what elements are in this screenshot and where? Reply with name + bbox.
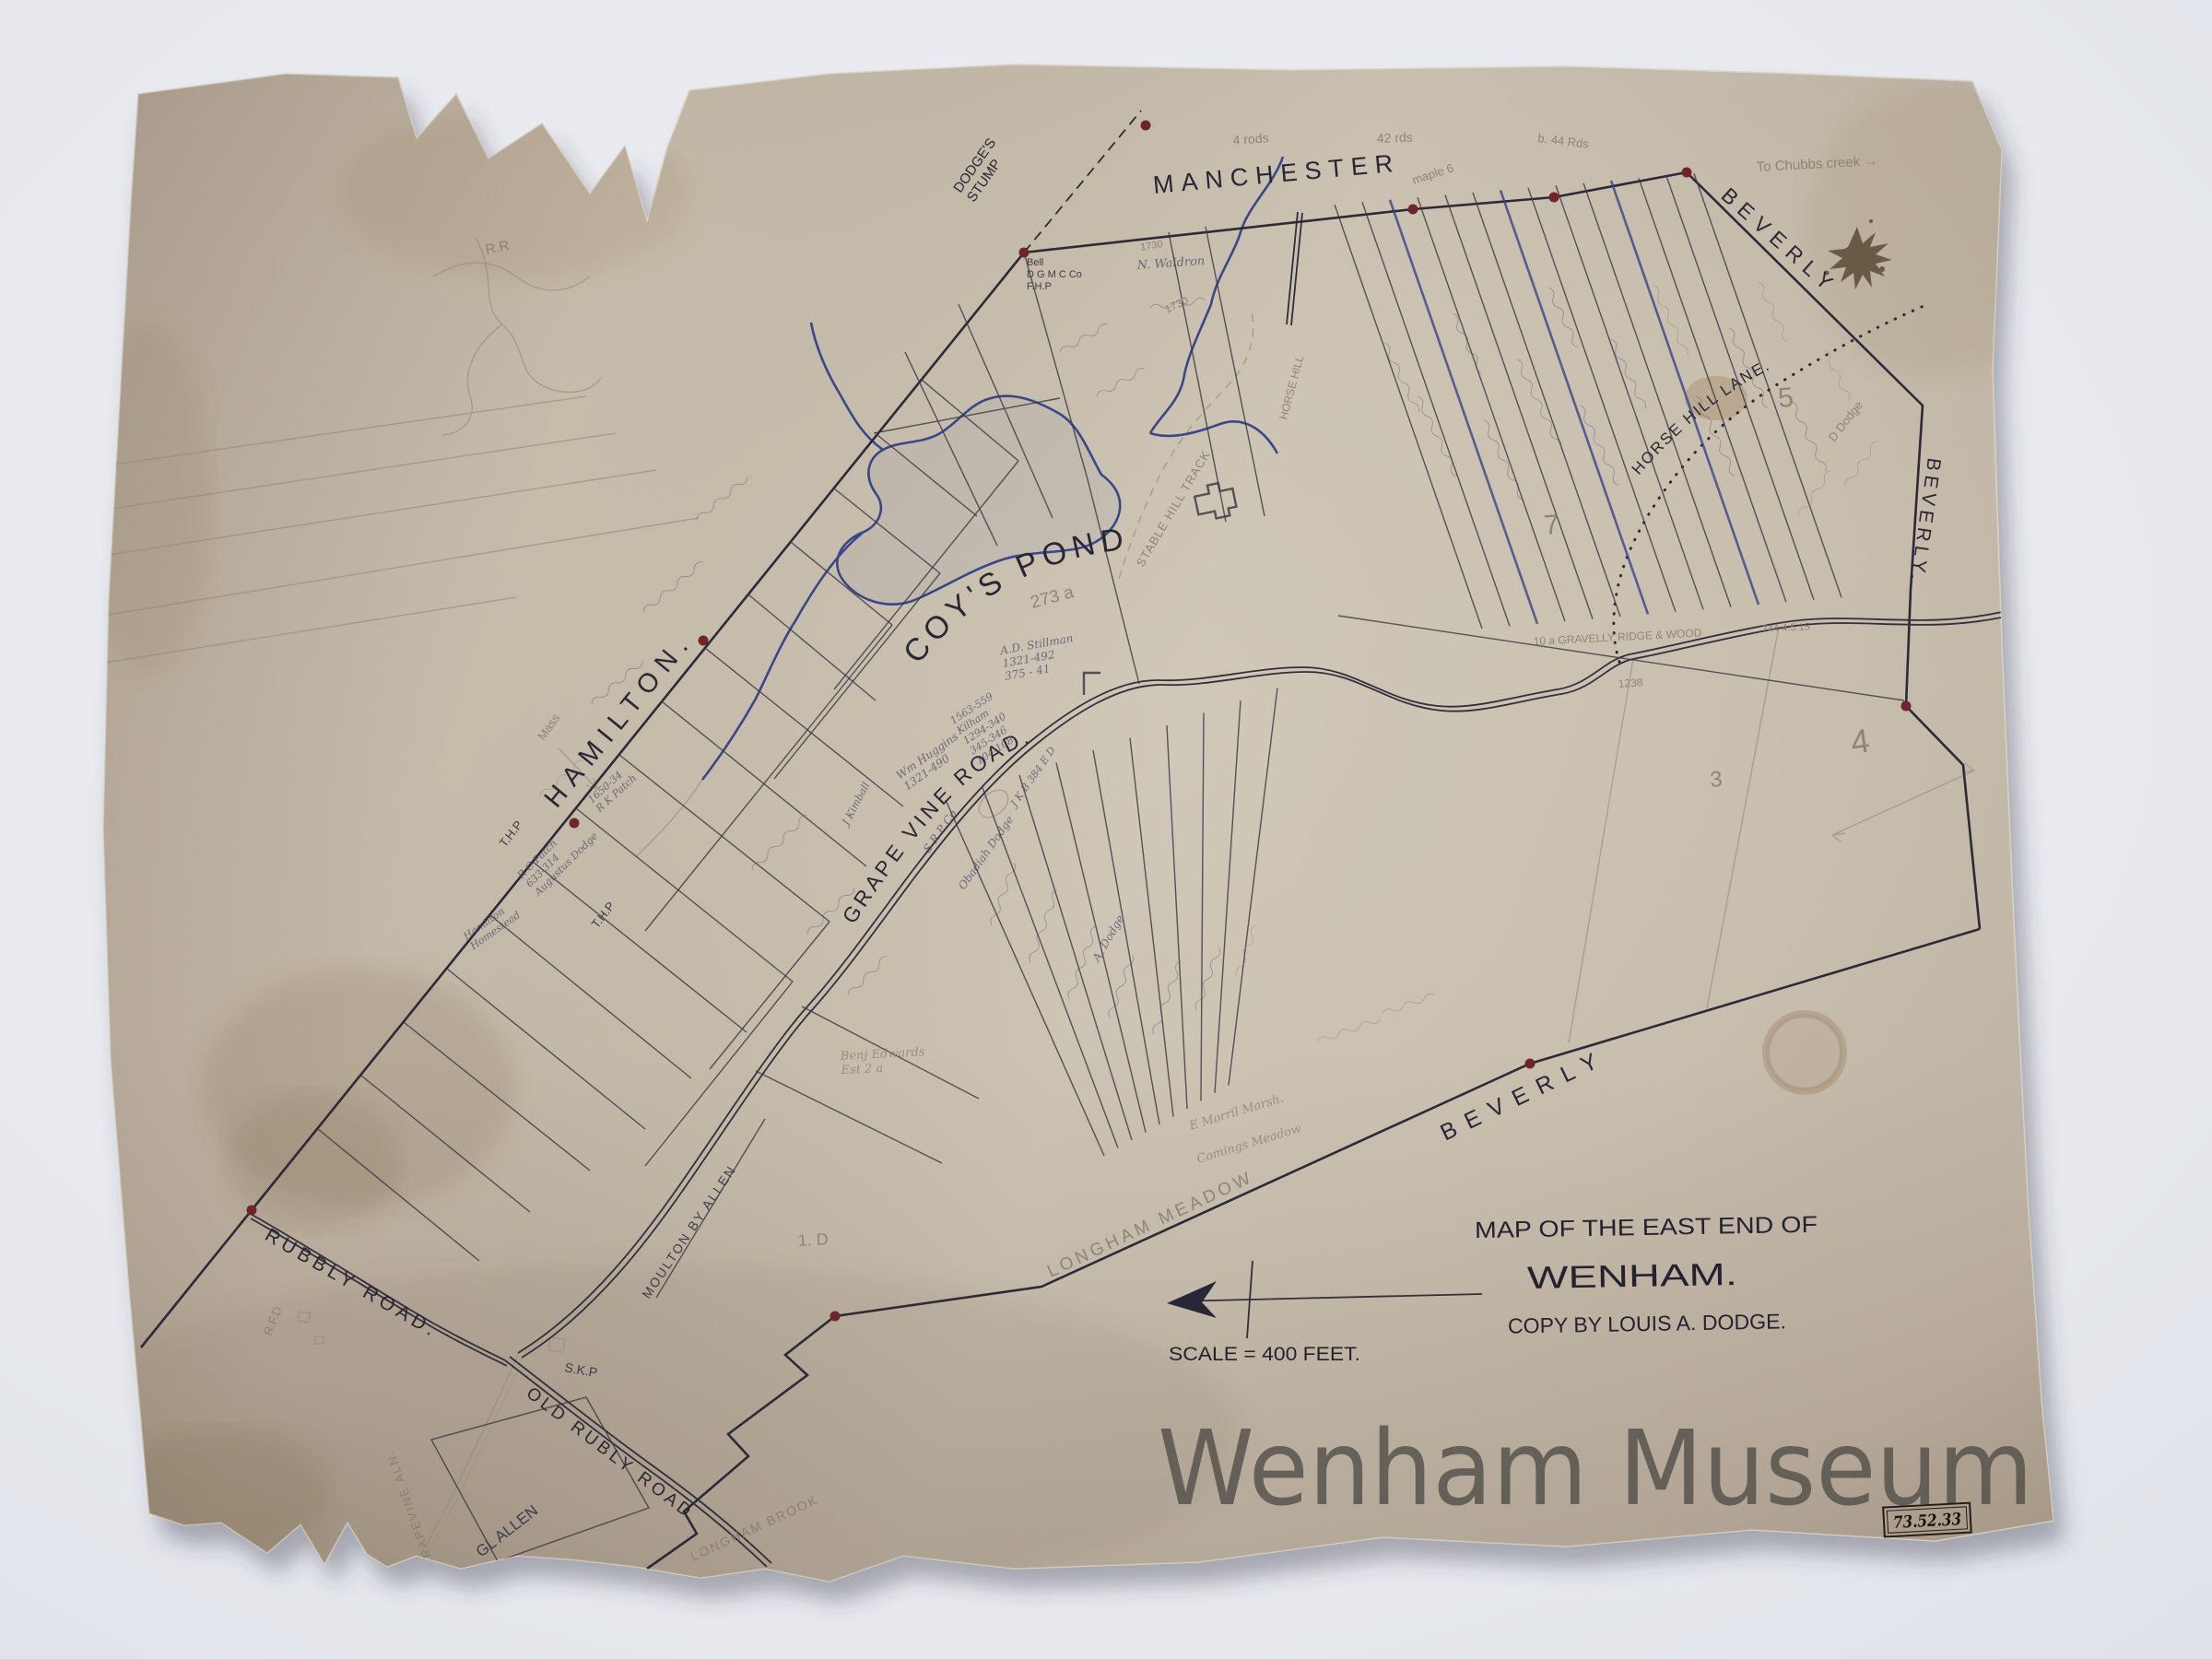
map-photo-svg: MANCHESTERBEVERLYBEVERLY.BEVERLYHAMILTON… xyxy=(0,0,2212,1659)
catalog-number: 73.52.33 xyxy=(1893,1510,1962,1533)
watermark-text: Wenham Museum xyxy=(1158,1409,2033,1529)
watermark: Wenham Museum 73.52.33 xyxy=(1158,1409,2033,1536)
paper-grain xyxy=(92,55,2065,1585)
photo-of-map: MANCHESTERBEVERLYBEVERLY.BEVERLYHAMILTON… xyxy=(0,0,2212,1659)
